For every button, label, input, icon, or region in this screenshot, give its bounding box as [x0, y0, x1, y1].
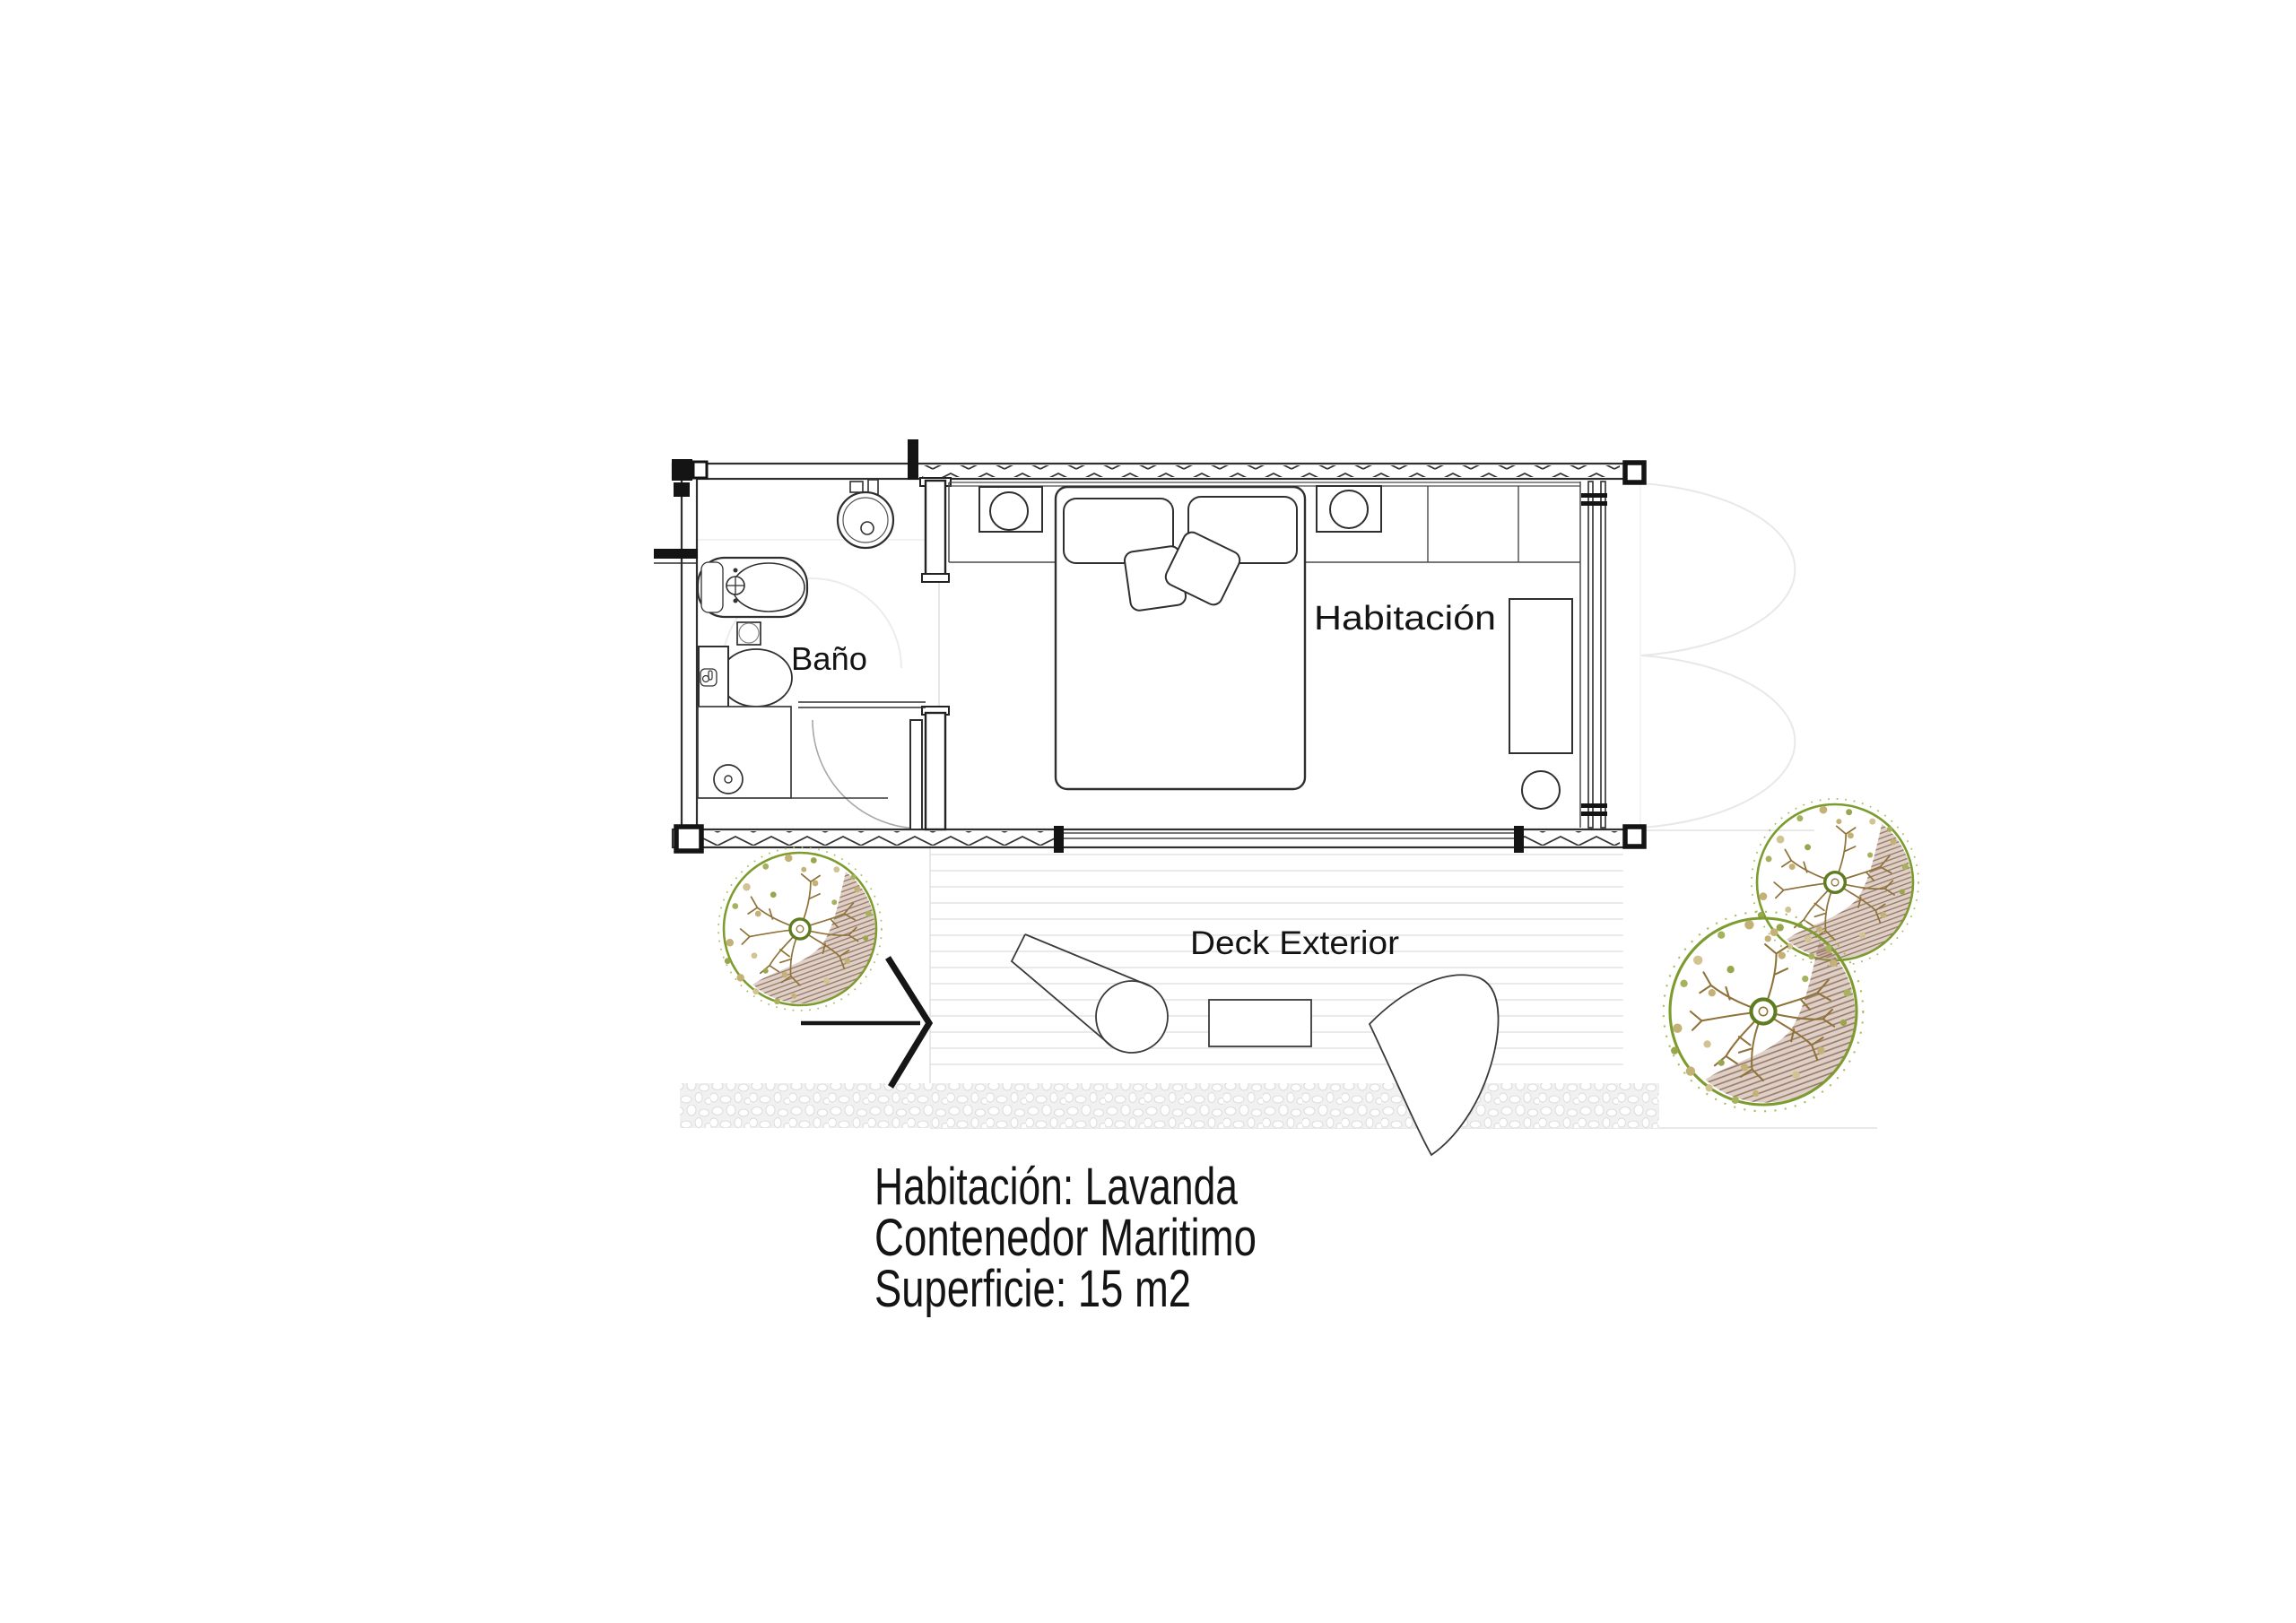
top-wall-hatch: [922, 465, 1620, 477]
bottom-wall-hatch-right: [1524, 831, 1620, 846]
nightstand-lamp-icon: [979, 487, 1042, 532]
caption-surface-area: Superficie: 15 m2: [874, 1260, 1191, 1318]
side-table-icon: [1209, 1000, 1311, 1046]
tree-icon: [718, 847, 882, 1011]
door-swing-icon: [813, 720, 922, 829]
floor-drain-icon: [737, 622, 761, 645]
nightstand-lamp-icon: [1317, 486, 1381, 532]
window-frame-tick: [1514, 826, 1524, 853]
bedroom: [949, 482, 1580, 828]
toilet-icon: [698, 558, 807, 617]
floor-plan-drawing: Baño Habitación Deck Exterior Habitación…: [0, 0, 2296, 1623]
bedroom-label: Habitación: [1314, 600, 1496, 638]
window-frame-tick: [1054, 826, 1064, 853]
shower-drain-icon: [714, 765, 743, 794]
corner-casting: [672, 459, 692, 481]
bidet-icon: [699, 647, 792, 708]
desk-icon: [1509, 599, 1572, 753]
caption-structure-type: Contenedor Maritimo: [874, 1209, 1257, 1267]
caption-room-name: Habitación: Lavanda: [874, 1158, 1239, 1216]
caption: Habitación: Lavanda Contenedor Maritimo …: [874, 1158, 1257, 1318]
deck-label: Deck Exterior: [1190, 924, 1399, 961]
corner-casting: [1625, 463, 1644, 482]
shower-icon: [698, 707, 888, 798]
gravel-strip: [680, 1083, 1659, 1128]
wall-connector: [1581, 493, 1607, 816]
floor-plan-canvas: Baño Habitación Deck Exterior Habitación…: [0, 0, 2296, 1623]
french-door-swing-icon: [1640, 483, 1795, 828]
stool-icon: [1522, 771, 1560, 809]
sink-icon: [838, 480, 893, 548]
tree-icon: [1752, 799, 1918, 966]
window-wall-icon: [1588, 482, 1605, 828]
partition-wall: [920, 478, 951, 829]
wall-junction-tick: [908, 439, 918, 480]
door-leaf: [910, 720, 922, 829]
bathroom-label: Baño: [791, 640, 867, 677]
bathroom: [698, 480, 926, 798]
service-stub: [654, 549, 698, 559]
left-wall: [682, 464, 697, 847]
corner-casting: [674, 482, 690, 497]
vanity-edge: [798, 702, 926, 707]
corner-casting: [676, 827, 701, 851]
bed-icon: [1056, 487, 1305, 789]
corner-casting: [1625, 827, 1644, 846]
bottom-wall-hatch-left: [702, 831, 1054, 846]
corner-casting: [693, 462, 707, 478]
